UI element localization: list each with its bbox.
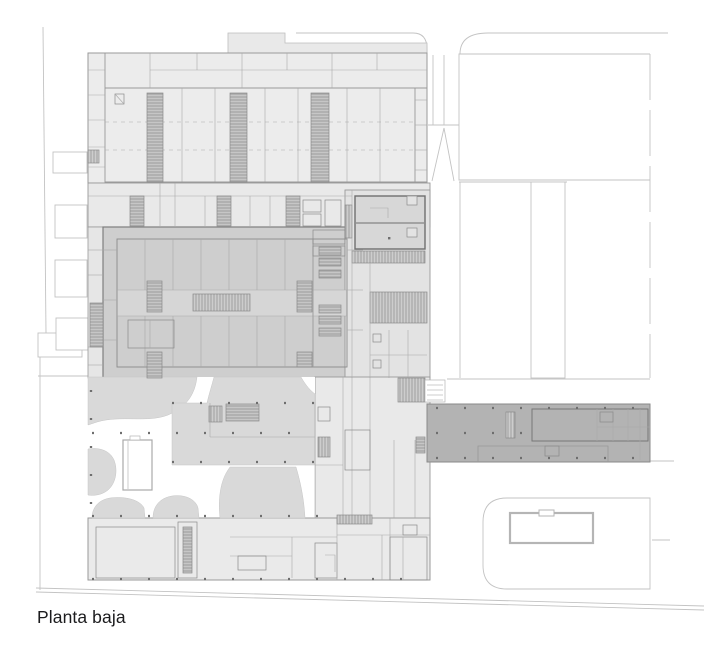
stair-core (286, 196, 300, 226)
connector-wing (427, 404, 650, 462)
plan-sheet: Planta baja (0, 0, 704, 666)
floor-plan-drawing (0, 0, 704, 666)
stair-core (130, 196, 144, 226)
roof-patch (228, 33, 427, 55)
planter (123, 440, 152, 490)
plan-caption: Planta baja (37, 607, 126, 628)
lawn-patch (219, 467, 305, 518)
stair-core (147, 352, 162, 378)
pool (510, 513, 593, 543)
stair-core (311, 93, 329, 182)
ramp-stair (398, 378, 425, 402)
west-margin (88, 227, 103, 378)
stair-core (297, 281, 312, 312)
stair-core (147, 93, 163, 182)
central-stair (193, 294, 250, 311)
west-stair (90, 303, 103, 347)
stair-core (230, 93, 247, 182)
entry-stair (88, 150, 99, 163)
stair-core (297, 352, 312, 367)
north-lab-block (88, 53, 427, 183)
stair-core (217, 196, 231, 226)
bench (337, 515, 372, 524)
stair-core (147, 281, 162, 312)
